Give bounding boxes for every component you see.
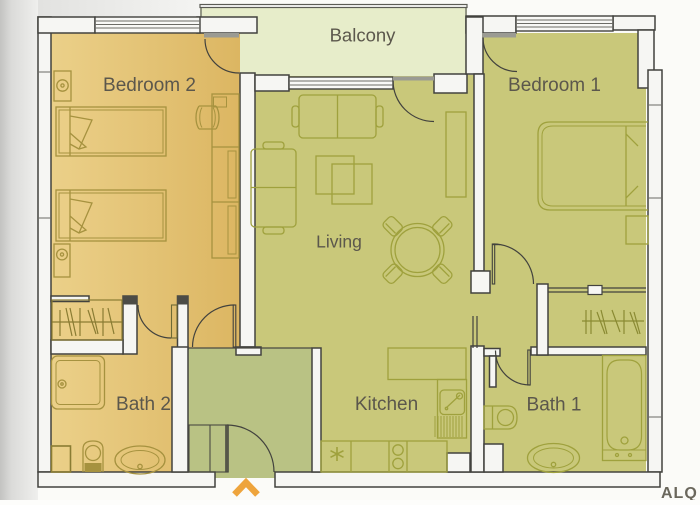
svg-text:Living: Living (316, 232, 362, 252)
svg-text:Bath 1: Bath 1 (527, 395, 582, 416)
svg-text:Balcony: Balcony (330, 25, 397, 46)
svg-text:Bedroom 2: Bedroom 2 (103, 75, 196, 96)
svg-text:Bath 2: Bath 2 (116, 394, 171, 415)
svg-text:ALQ: ALQ (661, 485, 698, 500)
svg-text:Bedroom 1: Bedroom 1 (508, 75, 601, 96)
svg-text:Kitchen: Kitchen (355, 394, 418, 415)
